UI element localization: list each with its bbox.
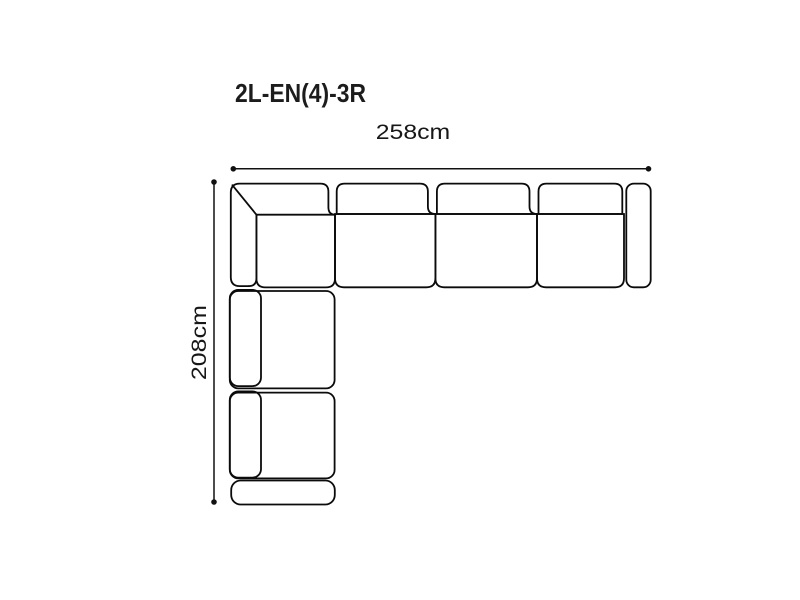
svg-text:208cm: 208cm — [187, 305, 211, 380]
svg-text:2L-EN(4)-3R: 2L-EN(4)-3R — [235, 80, 366, 108]
svg-text:258cm: 258cm — [376, 120, 451, 144]
